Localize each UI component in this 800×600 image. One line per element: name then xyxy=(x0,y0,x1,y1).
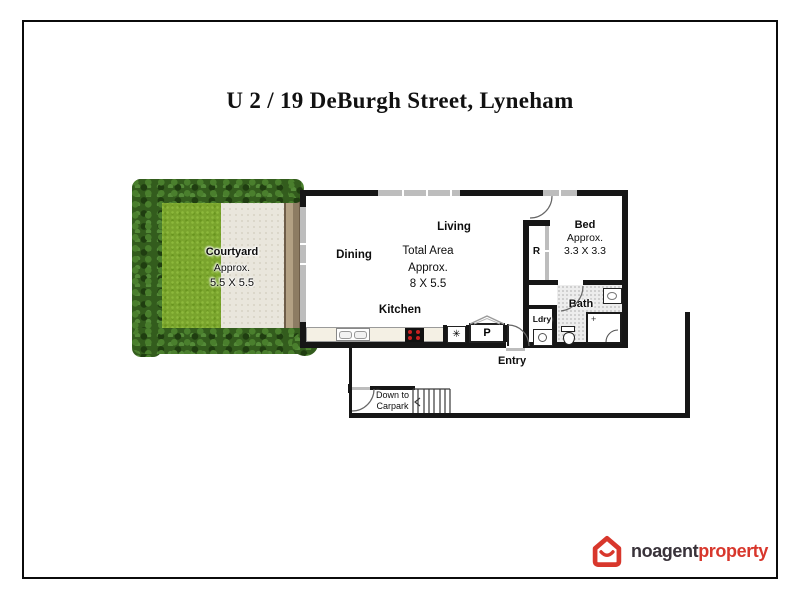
burner xyxy=(408,330,412,334)
bath-label: Bath xyxy=(560,298,602,311)
total-area-block: Total Area Approx. 8 X 5.5 xyxy=(390,243,466,293)
stairs-line2: Carpark xyxy=(365,401,420,412)
sink-icon xyxy=(336,328,370,341)
bed-dims: 3.3 X 3.3 xyxy=(548,245,622,258)
kitchen-label: Kitchen xyxy=(372,304,428,318)
courtyard-label-block: Courtyard Approx. 5.5 X 5.5 xyxy=(186,245,278,292)
basin xyxy=(607,292,617,300)
walkway-left-wall xyxy=(349,348,352,415)
logo-text-accent: property xyxy=(698,541,768,561)
stairs-label-block: Down to Carpark xyxy=(365,390,420,411)
total-area-line3: 8 X 5.5 xyxy=(390,276,466,293)
dining-label: Dining xyxy=(326,249,382,263)
agency-logo: noagentproperty xyxy=(590,534,768,568)
hedge-bottom xyxy=(132,328,308,354)
wall-right xyxy=(622,190,628,348)
washing-machine-icon xyxy=(533,329,553,346)
total-area-line2: Approx. xyxy=(390,260,466,277)
window-bed xyxy=(543,190,577,196)
wall-top xyxy=(300,190,628,196)
living-label: Living xyxy=(426,221,482,235)
bed-approx: Approx. xyxy=(548,232,622,245)
kitchen-post xyxy=(503,325,507,342)
pantry: P xyxy=(469,323,505,343)
entry-label: Entry xyxy=(486,355,538,368)
bed-label-block: Bed Approx. 3.3 X 3.3 xyxy=(548,219,622,258)
shower-icon: + xyxy=(586,312,622,344)
house-logo-icon xyxy=(590,534,624,568)
entry-threshold xyxy=(506,348,525,351)
shower-head-icon: + xyxy=(591,314,596,324)
bed-bottom-wall-left xyxy=(523,280,558,285)
sink-bowl xyxy=(339,331,352,339)
sink-bowl xyxy=(354,331,367,339)
logo-text-primary: noagent xyxy=(631,541,698,561)
bed-label: Bed xyxy=(548,219,622,232)
laundry-label: Ldry xyxy=(527,314,557,324)
page-title: U 2 / 19 DeBurgh Street, Lyneham xyxy=(0,88,800,114)
walkway-right-wall xyxy=(685,312,690,418)
burner xyxy=(416,336,420,340)
courtyard-label: Courtyard xyxy=(186,245,278,261)
window-living xyxy=(378,190,460,196)
robe-label: R xyxy=(529,246,544,258)
stove-icon xyxy=(405,328,424,342)
washer-drum xyxy=(538,333,547,342)
vanity-icon xyxy=(603,288,622,304)
walkway-bottom-wall xyxy=(349,413,690,418)
floorplan-page: U 2 / 19 DeBurgh Street, Lyneham Courtya… xyxy=(0,0,800,600)
logo-wordmark: noagentproperty xyxy=(631,534,768,568)
courtyard-approx: Approx. xyxy=(186,261,278,277)
courtyard-deck xyxy=(284,196,301,346)
sliding-door-courtyard xyxy=(300,207,306,322)
stairs-line1: Down to xyxy=(365,390,420,401)
courtyard-dims: 5.5 X 5.5 xyxy=(186,276,278,292)
total-area-line1: Total Area xyxy=(390,243,466,260)
burner xyxy=(408,336,412,340)
burner xyxy=(416,330,420,334)
dishwasher-icon: ✳ xyxy=(447,326,466,343)
